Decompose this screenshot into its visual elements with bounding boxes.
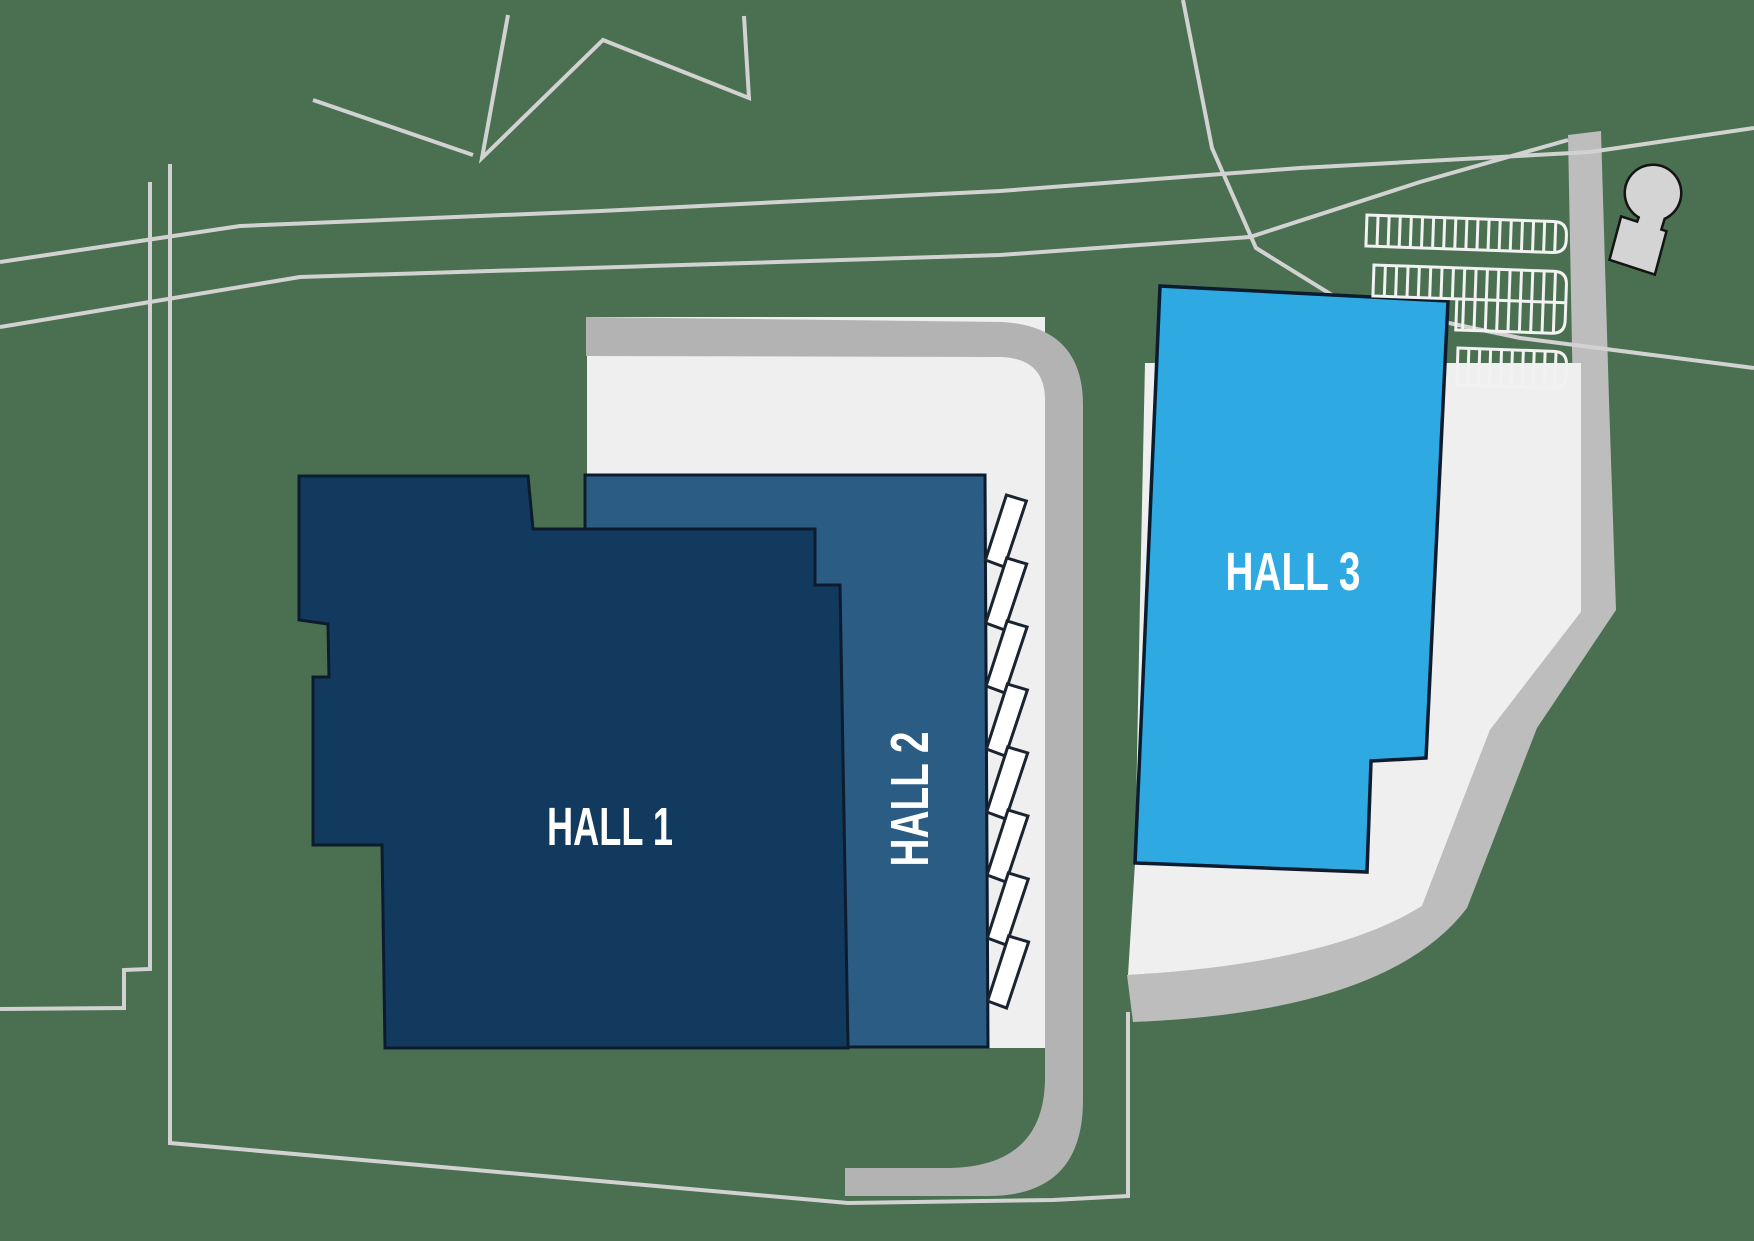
site-map: HALL 1 HALL 2 HALL 3	[0, 0, 1754, 1241]
hall-3-label: HALL 3	[1226, 542, 1361, 602]
hall-2-label: HALL 2	[880, 732, 940, 867]
hall-1-label: HALL 1	[547, 797, 673, 857]
